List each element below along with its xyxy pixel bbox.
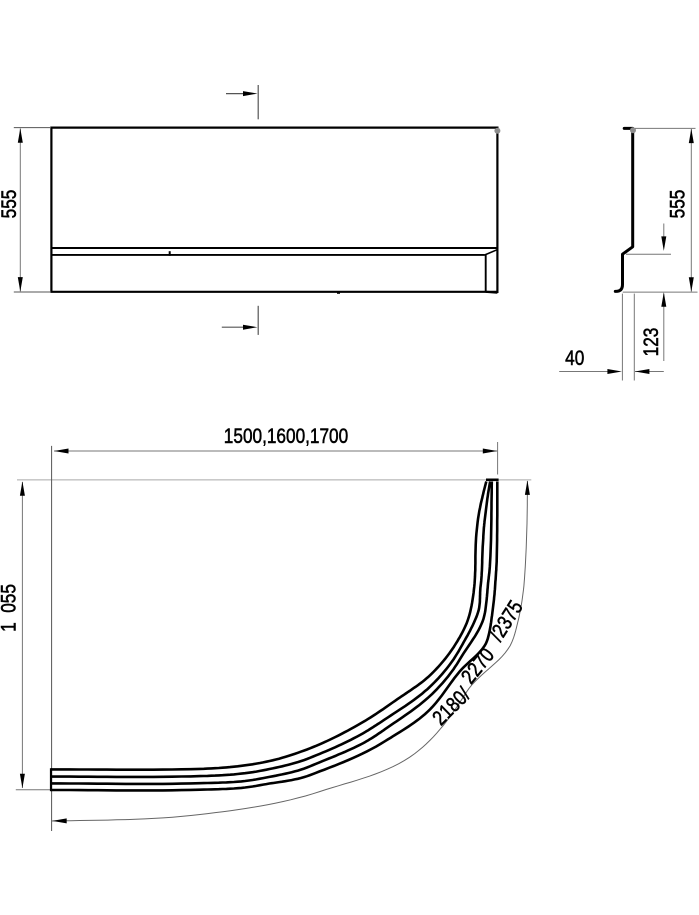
svg-text:555: 555 <box>667 190 690 219</box>
svg-text:123: 123 <box>640 328 663 357</box>
svg-text:1500,1600,1700: 1500,1600,1700 <box>224 426 348 449</box>
svg-text:40: 40 <box>565 348 584 371</box>
svg-text:555: 555 <box>0 190 21 219</box>
svg-text:1 055: 1 055 <box>0 584 21 632</box>
